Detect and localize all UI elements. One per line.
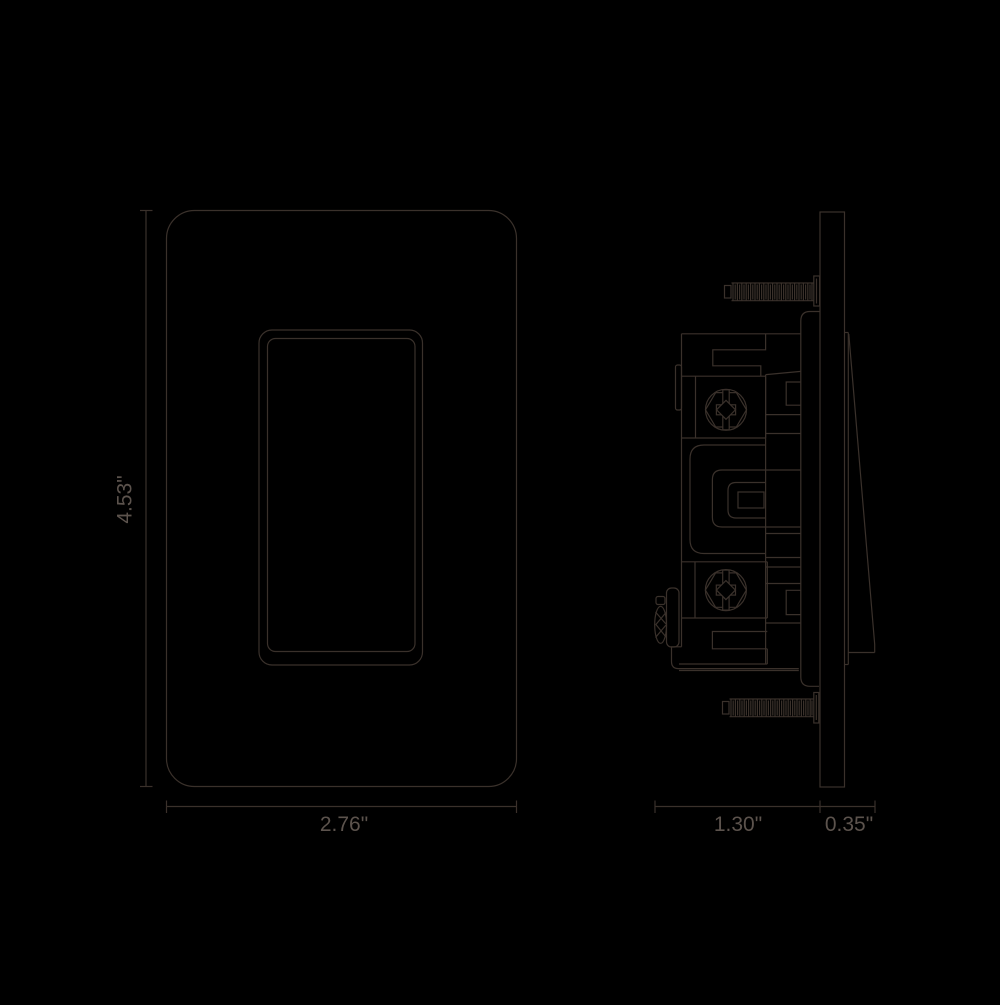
- svg-text:0.35": 0.35": [825, 813, 873, 836]
- svg-text:4.53": 4.53": [114, 475, 137, 523]
- svg-text:2.76": 2.76": [320, 813, 368, 836]
- svg-text:1.30": 1.30": [714, 813, 762, 836]
